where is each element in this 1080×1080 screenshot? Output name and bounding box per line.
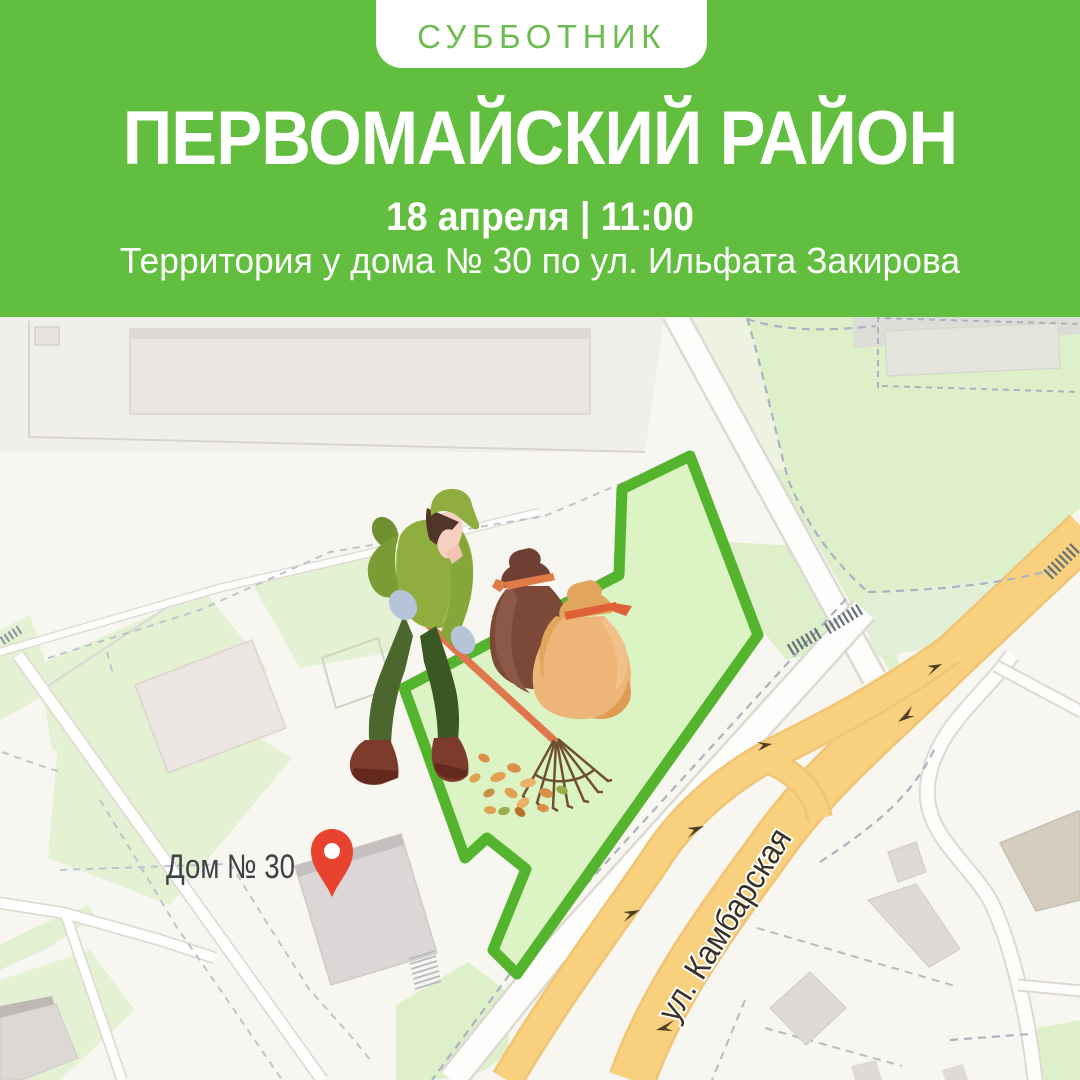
svg-text:Дом № 30: Дом № 30 bbox=[166, 848, 295, 886]
